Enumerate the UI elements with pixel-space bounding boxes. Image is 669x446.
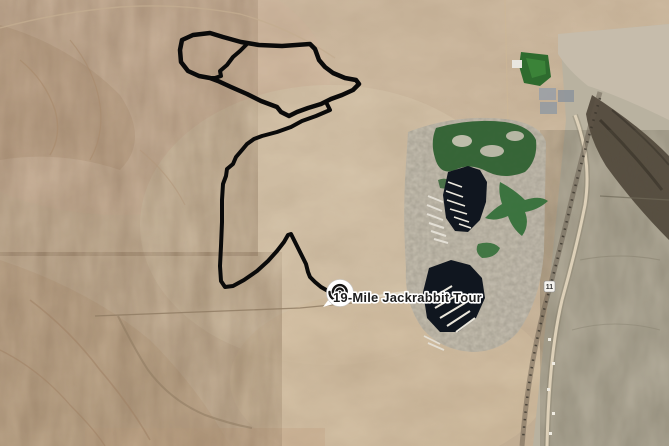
mountain-ridges <box>0 0 282 446</box>
satellite-map[interactable]: 19-Mile Jackrabbit Tour 11 <box>0 0 669 446</box>
highway-shield-badge: 11 <box>544 281 555 292</box>
tour-label: 19-Mile Jackrabbit Tour <box>333 290 482 305</box>
shield-label: 11 <box>546 284 554 291</box>
